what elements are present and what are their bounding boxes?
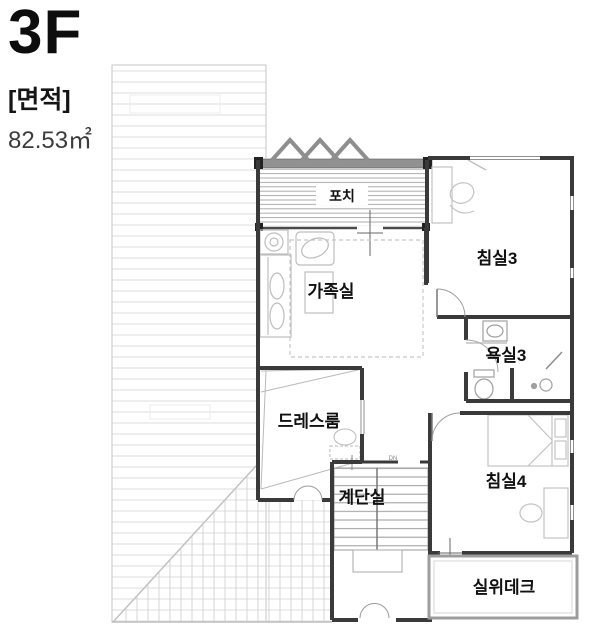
shower-control [532, 384, 537, 389]
label-deck: 실위데크 [473, 578, 536, 597]
label-bedroom4: 침실4 [486, 471, 527, 491]
label-porch: 포치 [329, 188, 355, 204]
floorplan-page: 3F [면적] 82.53㎡ [0, 0, 600, 634]
stair-treads [334, 468, 428, 550]
floorplan-drawing: 포치 침실3 가족실 욕실3 드레스룸 계단실 침실4 실위데크 DN [0, 0, 600, 634]
label-dressroom: 드레스룸 [278, 412, 341, 431]
label-family-room: 가족실 [308, 282, 355, 301]
stair-landing [353, 550, 402, 572]
label-staircase: 계단실 [339, 488, 386, 507]
porch-top-wall [256, 159, 432, 168]
label-stair-direction: DN [389, 456, 398, 462]
label-bedroom3: 침실3 [477, 248, 518, 268]
porch-canopy-zigzag [272, 140, 368, 160]
label-bathroom3: 욕실3 [486, 346, 527, 365]
